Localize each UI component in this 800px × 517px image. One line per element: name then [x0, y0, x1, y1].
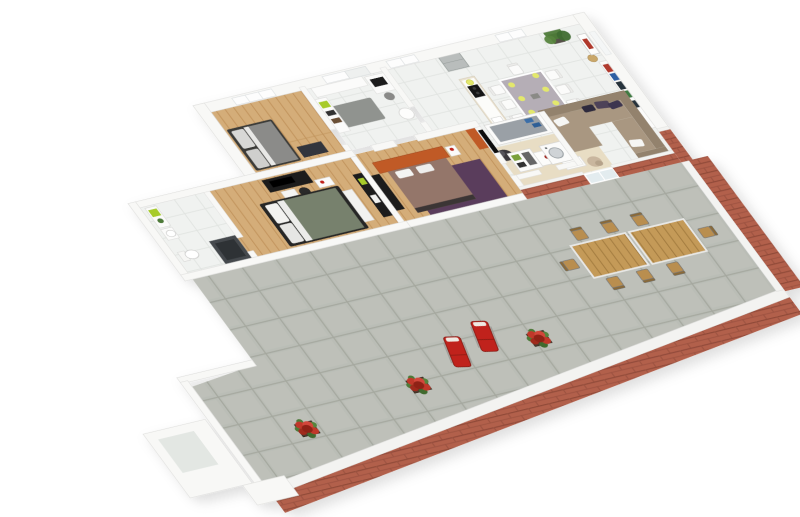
isometric-scene — [0, 9, 800, 517]
floor-plan-render — [0, 0, 800, 517]
floor-plan-stage — [0, 0, 800, 517]
